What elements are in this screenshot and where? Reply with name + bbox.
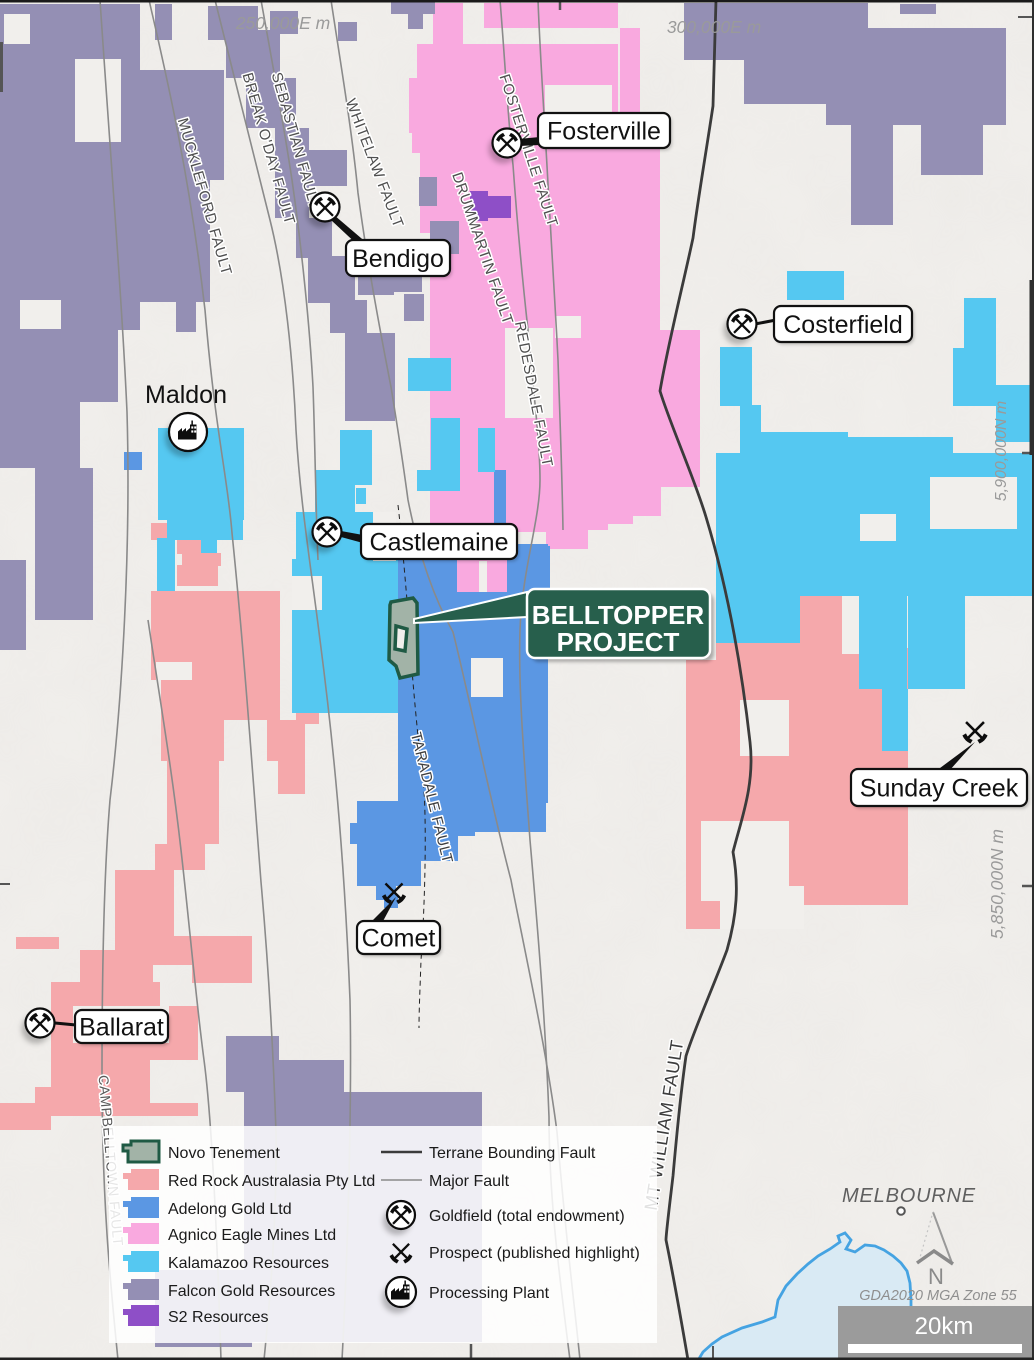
svg-text:Fosterville: Fosterville bbox=[547, 117, 661, 145]
svg-text:Adelong Gold Ltd: Adelong Gold Ltd bbox=[168, 1201, 292, 1218]
svg-text:PROJECT: PROJECT bbox=[557, 627, 680, 657]
svg-text:Ballarat: Ballarat bbox=[79, 1013, 164, 1041]
svg-text:Kalamazoo Resources: Kalamazoo Resources bbox=[168, 1255, 329, 1272]
svg-text:BELLTOPPER: BELLTOPPER bbox=[532, 600, 705, 630]
svg-text:Processing Plant: Processing Plant bbox=[429, 1285, 550, 1302]
svg-text:5,850,000N m: 5,850,000N m bbox=[987, 829, 1007, 939]
svg-text:MELBOURNE: MELBOURNE bbox=[842, 1185, 976, 1207]
svg-text:Major Fault: Major Fault bbox=[429, 1173, 510, 1190]
svg-text:Bendigo: Bendigo bbox=[352, 245, 444, 273]
svg-text:S2 Resources: S2 Resources bbox=[168, 1309, 269, 1326]
svg-text:Agnico Eagle Mines Ltd: Agnico Eagle Mines Ltd bbox=[168, 1227, 336, 1244]
svg-text:Red Rock Australasia Pty Ltd: Red Rock Australasia Pty Ltd bbox=[168, 1173, 375, 1190]
svg-text:Terrane Bounding Fault: Terrane Bounding Fault bbox=[429, 1145, 596, 1162]
svg-text:Goldfield (total endowment): Goldfield (total endowment) bbox=[429, 1208, 625, 1225]
svg-text:Castlemaine: Castlemaine bbox=[370, 528, 509, 556]
svg-text:Sunday Creek: Sunday Creek bbox=[860, 774, 1019, 802]
svg-text:Novo Tenement: Novo Tenement bbox=[168, 1145, 280, 1162]
svg-text:Prospect (published highlight): Prospect (published highlight) bbox=[429, 1245, 640, 1262]
svg-text:5,900,000N m: 5,900,000N m bbox=[993, 401, 1010, 502]
svg-text:GDA2020 MGA Zone 55: GDA2020 MGA Zone 55 bbox=[859, 1288, 1017, 1304]
svg-text:250,000E m: 250,000E m bbox=[235, 13, 330, 33]
svg-text:300,000E m: 300,000E m bbox=[667, 17, 761, 37]
svg-text:N: N bbox=[928, 1264, 944, 1289]
svg-text:Costerfield: Costerfield bbox=[783, 311, 903, 339]
svg-text:Falcon Gold Resources: Falcon Gold Resources bbox=[168, 1283, 335, 1300]
svg-text:20km: 20km bbox=[915, 1313, 974, 1340]
svg-text:Maldon: Maldon bbox=[145, 381, 227, 409]
svg-text:Comet: Comet bbox=[362, 924, 436, 952]
